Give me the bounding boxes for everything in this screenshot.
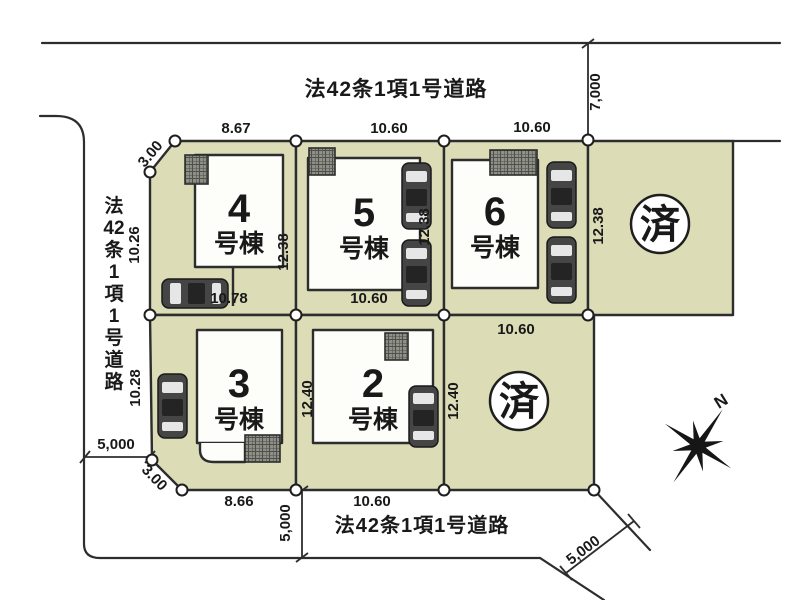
- svg-text:号: 号: [104, 327, 123, 349]
- boundary-point: [439, 310, 450, 321]
- lot-2-hatch-box: [385, 333, 408, 360]
- boundary-point: [145, 310, 156, 321]
- building-2-suffix: 号棟: [348, 406, 399, 434]
- compass-north-label: N: [711, 390, 731, 413]
- building-4-number: 4: [228, 187, 251, 231]
- building-5-suffix: 号棟: [339, 235, 390, 263]
- lot-6-hatch-box: [490, 150, 537, 175]
- dim-lot2-left: 12.40: [299, 380, 316, 418]
- building-3-number: 3: [228, 362, 250, 406]
- boundary-point: [439, 485, 450, 496]
- boundary-point: [589, 485, 600, 496]
- dim-lot6-right: 12.38: [590, 207, 607, 245]
- bottom-road-label: 法42条1項1号道路: [335, 513, 510, 537]
- dim-lot3-bottom: 8.66: [224, 493, 253, 510]
- dim-lot4-bottom: 10.78: [210, 290, 248, 307]
- building-6-number: 6: [484, 190, 506, 234]
- dim-sold-bottom-left: 12.40: [445, 382, 462, 420]
- car-icon: [409, 386, 438, 447]
- bottom-road-bend-north-edge: [594, 490, 650, 550]
- dim-road-5000-corner: 5,000: [563, 532, 603, 568]
- svg-text:道: 道: [104, 348, 123, 371]
- tick: [628, 514, 640, 528]
- building-4-suffix: 号棟: [214, 230, 265, 258]
- dim-lot3-left: 10.28: [127, 369, 144, 407]
- site-plan-drawing: 済 済 4 号棟 5 号棟 6 号棟 3 号棟 2 号棟 法42条1項1号道路 …: [0, 0, 800, 600]
- top-road-label: 法42条1項1号道路: [305, 77, 488, 101]
- dim-road-5000-bottom: 5,000: [277, 504, 294, 542]
- dim-road-7000: 7,000: [587, 73, 604, 111]
- building-3-suffix: 号棟: [214, 406, 265, 434]
- svg-text:1: 1: [109, 262, 120, 283]
- svg-text:1: 1: [109, 306, 120, 327]
- boundary-point: [177, 485, 188, 496]
- site-plan: 済 済 4 号棟 5 号棟 6 号棟 3 号棟 2 号棟 法42条1項1号道路 …: [0, 0, 800, 600]
- boundary-point: [583, 310, 594, 321]
- building-3-porch: [200, 443, 245, 462]
- sold-stamp-text: 済: [499, 380, 540, 424]
- boundary-point: [291, 485, 302, 496]
- boundary-point: [291, 136, 302, 147]
- dim-lot5-bottom: 10.60: [350, 290, 388, 307]
- sold-stamp-text: 済: [640, 203, 681, 247]
- dim-lot4-right: 12.38: [275, 233, 292, 271]
- compass-icon: N: [665, 390, 732, 482]
- dim-lot6-top: 10.60: [513, 119, 551, 136]
- dim-lot5-right: 12.38: [416, 208, 433, 246]
- boundary-point: [170, 136, 181, 147]
- building-6-suffix: 号棟: [470, 234, 521, 262]
- lot-5-hatch-box: [309, 148, 335, 175]
- dim-lot2-bottom: 10.60: [353, 493, 391, 510]
- dim-lot6-bottom: 10.60: [497, 321, 535, 338]
- lot-4-hatch-box: [185, 155, 208, 184]
- left-road-label: 法 42 条 1 項 1 号 道 路: [103, 194, 124, 393]
- svg-text:条: 条: [104, 238, 124, 261]
- dim-lot5-top: 10.60: [370, 120, 408, 137]
- svg-text:項: 項: [104, 283, 124, 305]
- building-2-number: 2: [362, 362, 384, 406]
- dim-lot4-left: 10.26: [126, 226, 143, 264]
- dim-road-5000-left: 5,000: [97, 436, 135, 453]
- car-icon: [158, 374, 187, 438]
- lot-3-hatch-box: [245, 435, 280, 462]
- car-icon: [547, 162, 576, 228]
- boundary-point: [439, 136, 450, 147]
- svg-text:42: 42: [103, 218, 124, 239]
- car-icon: [547, 237, 576, 303]
- car-icon: [402, 240, 431, 306]
- boundary-point: [291, 310, 302, 321]
- dim-lot4-top: 8.67: [221, 120, 250, 137]
- svg-text:路: 路: [104, 370, 124, 393]
- boundary-point: [583, 135, 594, 146]
- building-5-number: 5: [353, 191, 375, 235]
- svg-text:法: 法: [104, 194, 123, 217]
